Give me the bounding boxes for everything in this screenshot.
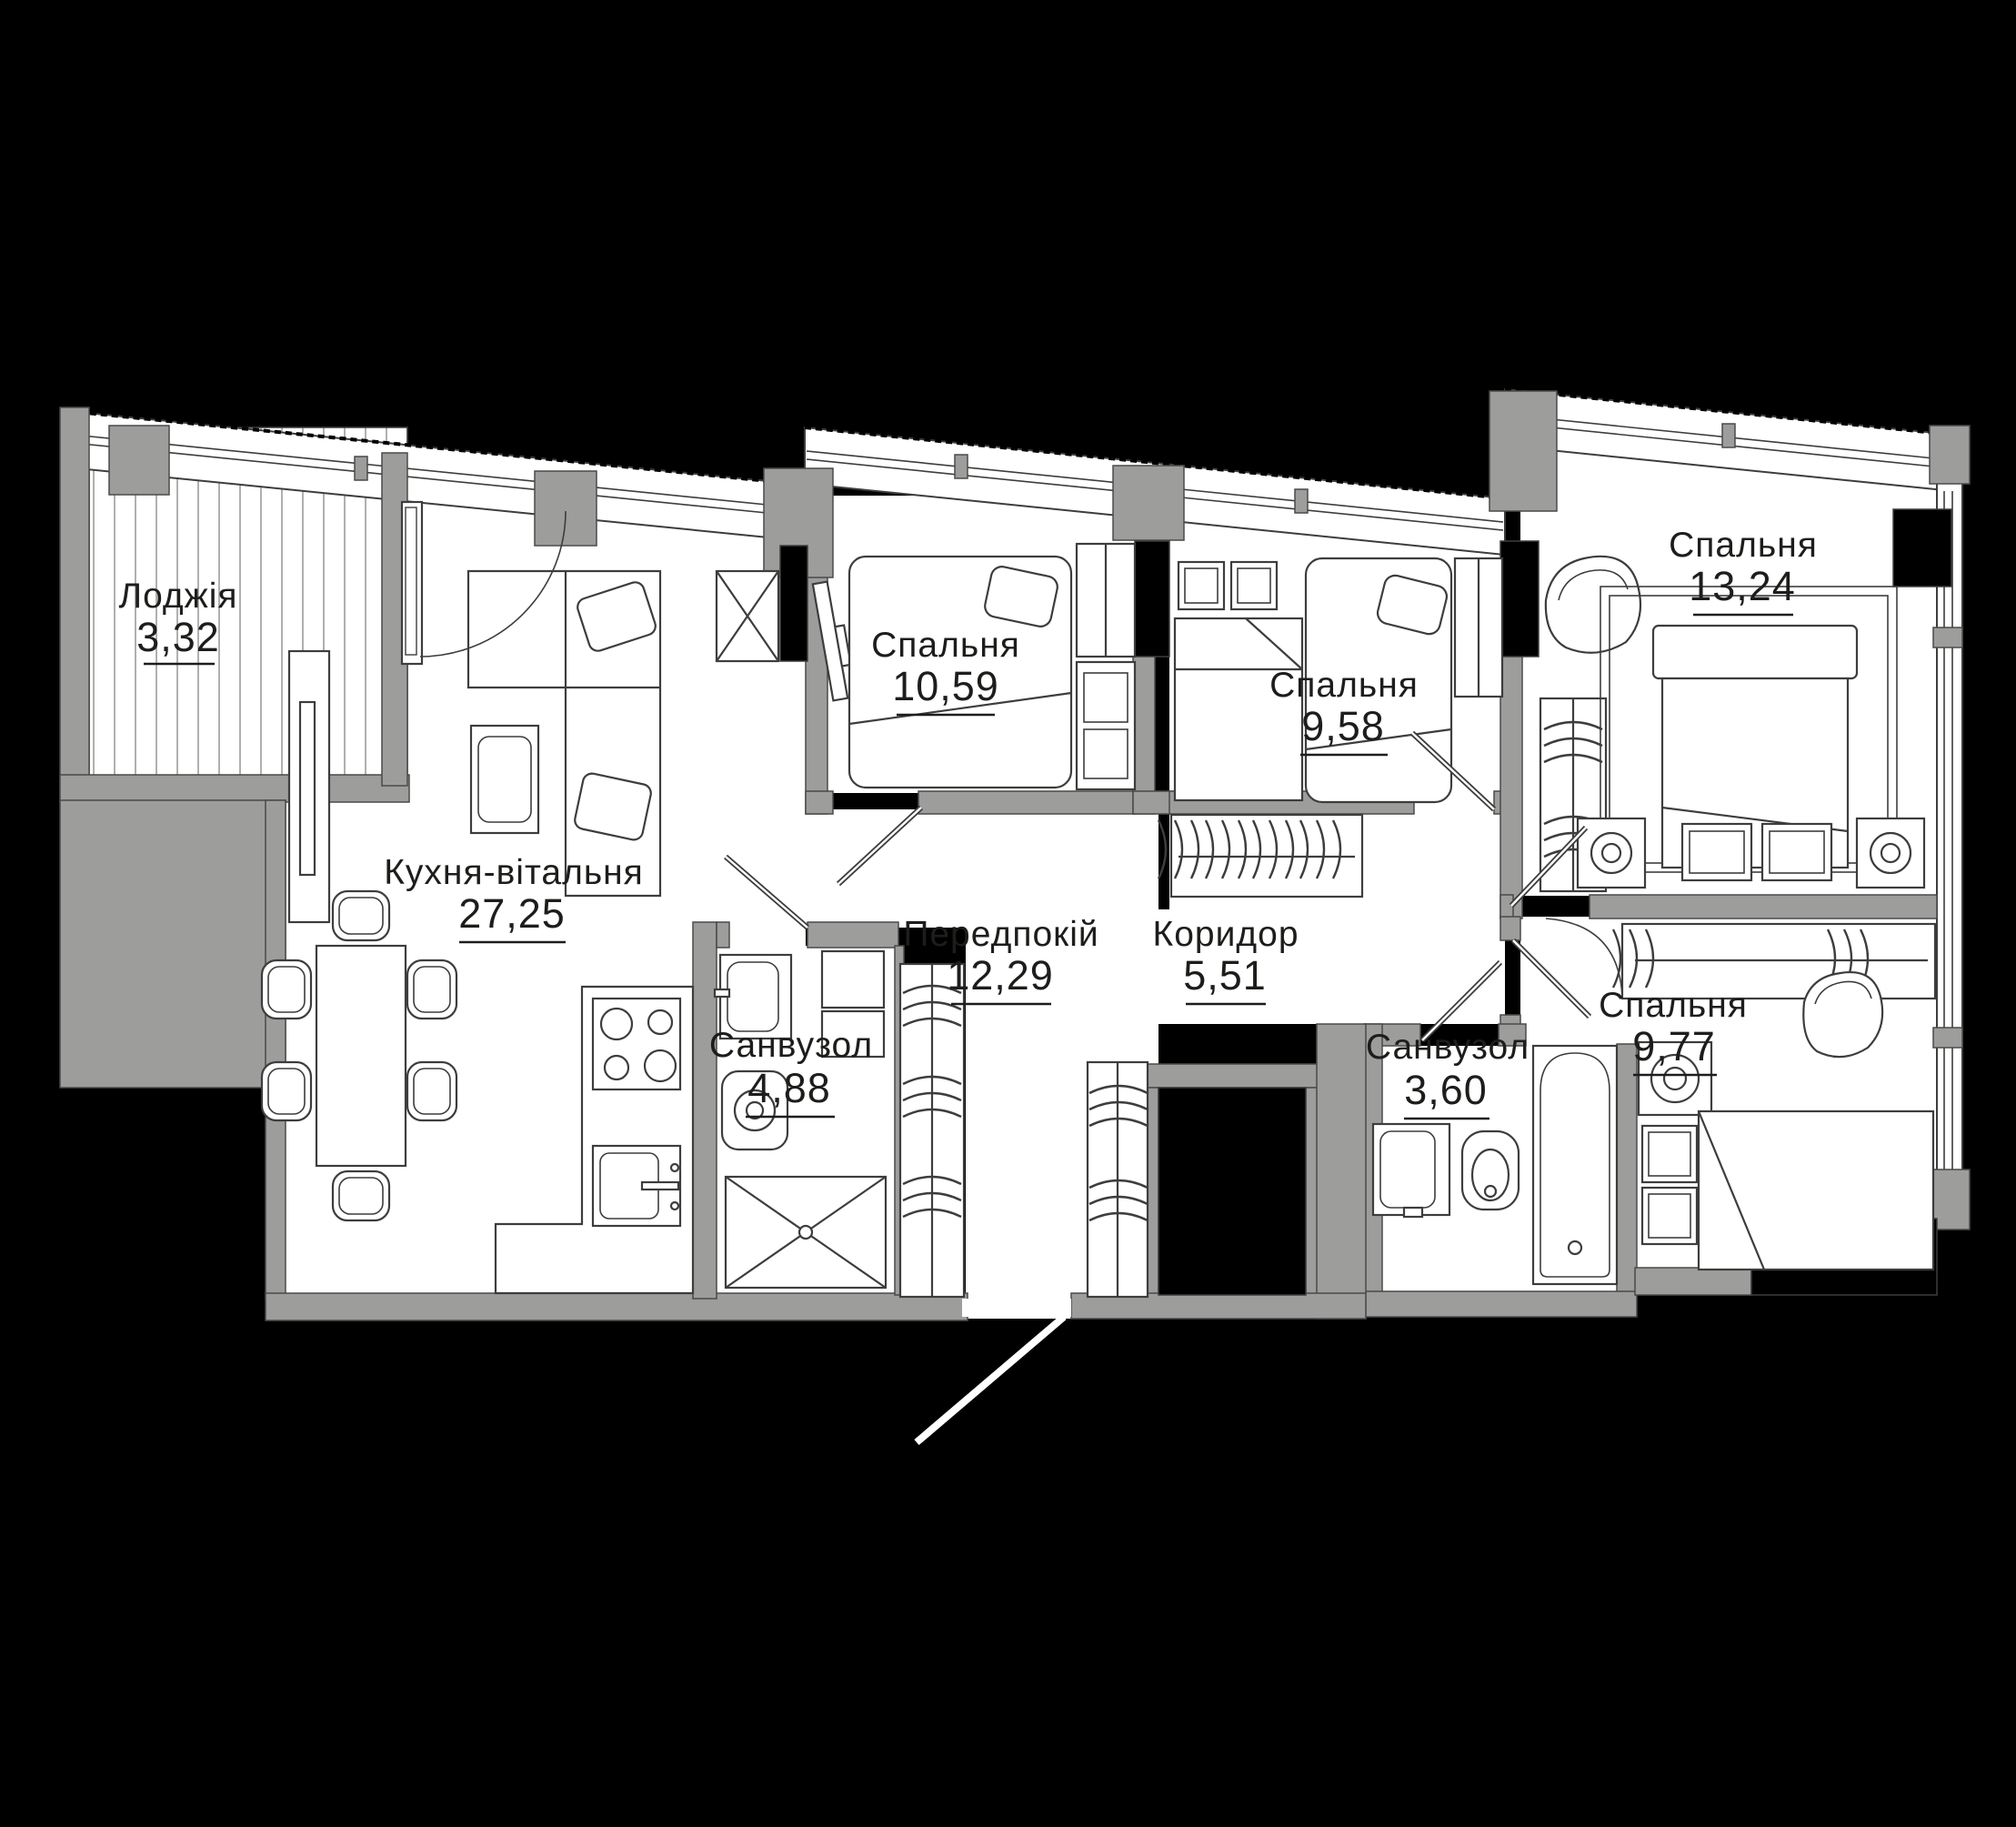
- area-bedroom-4: 9,77: [1632, 1023, 1716, 1069]
- corridor-wardrobe: [1158, 815, 1362, 897]
- wall-step-b: [1489, 391, 1557, 511]
- label-corridor: Коридор: [1152, 915, 1299, 954]
- wall-shaft-bathroom2: [1317, 1024, 1366, 1319]
- label-bathroom-2: Санвузол: [1366, 1028, 1530, 1067]
- dining-table: [316, 946, 406, 1166]
- cabinet: [822, 951, 884, 1008]
- label-bedroom-3: Спальня: [1669, 526, 1818, 565]
- area-loggia: 3,32: [136, 614, 220, 660]
- dresser: [1077, 662, 1135, 789]
- wall-loggia-bottom: [60, 775, 409, 802]
- floor-plan-svg: Лоджія 3,32 Кухня-вітальня 27,25 Спальня…: [0, 0, 2016, 1827]
- coffee-table: [471, 726, 538, 833]
- wall-bedroom4-bottom: [1635, 1268, 1751, 1295]
- floor-entrance-threshold: [966, 1295, 1071, 1319]
- wall-bathroom1-top-b: [807, 922, 898, 948]
- area-hallway: 12,29: [947, 952, 1054, 999]
- wall-bedroom4-left-a: [1500, 917, 1520, 940]
- floor-passage: [693, 809, 966, 928]
- desk-chair: [1803, 972, 1882, 1057]
- window-mullion-3: [1113, 466, 1184, 540]
- area-bedroom-2: 9,58: [1301, 703, 1385, 749]
- window-tick-3: [1295, 489, 1308, 513]
- area-bedroom-1: 10,59: [892, 663, 999, 709]
- wall-bedroom1-right: [1133, 655, 1155, 814]
- label-kitchen-living: Кухня-вітальня: [384, 853, 644, 892]
- shaft-corridor: [1158, 1088, 1306, 1295]
- window-tick-1: [355, 457, 367, 480]
- bed-headboard: [1653, 626, 1857, 678]
- wall-left-mass: [60, 800, 286, 1088]
- window-mullion-1: [109, 426, 169, 495]
- faucet: [1404, 1208, 1422, 1217]
- bed: [1699, 1111, 1933, 1270]
- wall-shaft-top: [1146, 1064, 1319, 1088]
- window-tick-4: [1722, 424, 1735, 447]
- shaft-top-right: [1893, 509, 1951, 587]
- vent-box: [717, 571, 778, 661]
- single-bed: [1175, 618, 1302, 800]
- tv-screen: [300, 702, 315, 875]
- nightstand: [1578, 818, 1645, 888]
- wall-bedroom1-bottom-a: [806, 791, 833, 814]
- floor-plan-canvas: Лоджія 3,32 Кухня-вітальня 27,25 Спальня…: [0, 0, 2016, 1827]
- area-bathroom-2: 3,60: [1404, 1067, 1488, 1113]
- wall-bedroom1-2-join: [1133, 791, 1173, 814]
- wall-bedroom1-bottom-b: [918, 791, 1137, 814]
- stove: [593, 999, 680, 1089]
- label-bedroom-1: Спальня: [871, 626, 1020, 665]
- shaft-living: [780, 546, 807, 661]
- window-tick-6: [1933, 1028, 1962, 1048]
- label-bathroom-1: Санвузол: [709, 1026, 873, 1065]
- shaft-bedroom2-3: [1500, 541, 1539, 657]
- wall-corridor-bedroom3: [1500, 655, 1522, 919]
- area-corridor: 5,51: [1183, 952, 1267, 999]
- wall-bedroom3-bottom: [1590, 895, 1937, 919]
- window-tick-5: [1933, 627, 1962, 647]
- area-kitchen-living: 27,25: [458, 890, 566, 937]
- window-mullion-2: [535, 471, 597, 546]
- wall-corner-top-right: [1930, 426, 1970, 484]
- pillow: [1682, 824, 1751, 880]
- label-bedroom-4: Спальня: [1599, 986, 1748, 1025]
- nightstand: [1642, 1188, 1697, 1244]
- label-hallway: Передпокій: [903, 915, 1098, 954]
- kitchen-sink: [593, 1146, 680, 1226]
- shower: [726, 1177, 886, 1288]
- shaft-bedroom1-2: [1135, 541, 1169, 657]
- wall-left-strip: [266, 800, 286, 1299]
- area-bathroom-1: 4,88: [747, 1065, 831, 1111]
- wall-bathroom2-bottom: [1364, 1291, 1637, 1317]
- wall-bottom-kitchen: [266, 1293, 968, 1320]
- wall-bathroom1-top-a: [717, 922, 729, 948]
- wall-bedroom3-bottom-stub: [1500, 895, 1513, 919]
- area-bedroom-3: 13,24: [1689, 563, 1796, 609]
- wall-loggia-left: [60, 407, 89, 800]
- faucet: [715, 989, 729, 997]
- label-bedroom-2: Спальня: [1269, 666, 1419, 705]
- wall-bathroom2-bedroom4: [1617, 1044, 1637, 1293]
- nightstand: [1642, 1126, 1697, 1182]
- sink: [1373, 1124, 1449, 1215]
- wall-bathroom1-left: [693, 922, 717, 1299]
- bathtub: [1533, 1046, 1617, 1284]
- window-tick-2: [955, 455, 968, 478]
- pillow: [1762, 824, 1831, 880]
- label-loggia: Лоджія: [118, 577, 237, 616]
- nightstand: [1857, 818, 1924, 888]
